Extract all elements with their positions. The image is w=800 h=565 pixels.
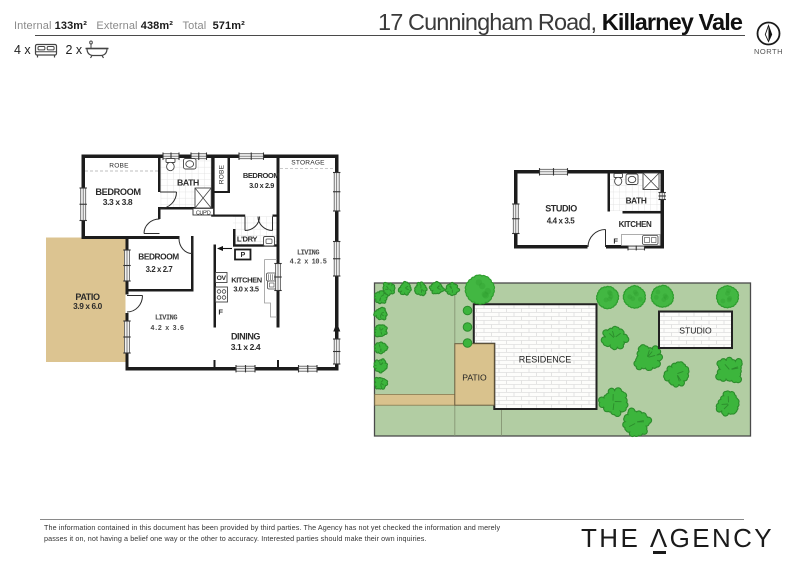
svg-text:DINING: DINING [231, 331, 260, 341]
svg-text:F: F [218, 308, 223, 317]
svg-text:4.4 x 3.5: 4.4 x 3.5 [547, 217, 575, 226]
svg-text:RESIDENCE: RESIDENCE [519, 355, 572, 365]
svg-text:4.2 x 10.5: 4.2 x 10.5 [290, 259, 327, 267]
svg-text:OV: OV [217, 275, 227, 282]
svg-text:3.2 x 2.7: 3.2 x 2.7 [146, 265, 173, 274]
svg-text:BEDROOM: BEDROOM [95, 187, 141, 197]
svg-text:BATH: BATH [177, 177, 199, 187]
svg-text:ROBE: ROBE [109, 163, 129, 170]
svg-text:KITCHEN: KITCHEN [619, 220, 652, 229]
svg-text:STUDIO: STUDIO [545, 204, 577, 214]
svg-text:CUP'D: CUP'D [196, 210, 211, 216]
svg-text:BATH: BATH [626, 196, 647, 206]
svg-text:F: F [613, 237, 618, 246]
svg-text:3.0 x 3.5: 3.0 x 3.5 [233, 285, 258, 294]
svg-text:PATIO: PATIO [462, 373, 487, 383]
svg-text:STUDIO: STUDIO [679, 326, 712, 336]
svg-text:L'DRY: L'DRY [237, 235, 258, 244]
svg-text:P: P [240, 250, 245, 259]
svg-text:3.1 x 2.4: 3.1 x 2.4 [231, 342, 261, 352]
svg-text:3.3 x 3.8: 3.3 x 3.8 [103, 197, 133, 207]
svg-text:NORTH: NORTH [754, 47, 783, 56]
svg-text:KITCHEN: KITCHEN [231, 276, 262, 285]
svg-text:LIVING: LIVING [297, 250, 319, 258]
svg-text:ROBE: ROBE [219, 164, 226, 184]
svg-text:BEDROOM: BEDROOM [138, 252, 179, 262]
svg-text:4.2 x 3.6: 4.2 x 3.6 [150, 325, 183, 333]
svg-text:3.9 x 6.0: 3.9 x 6.0 [73, 301, 102, 311]
svg-text:LIVING: LIVING [155, 315, 177, 323]
svg-text:STORAGE: STORAGE [291, 159, 325, 166]
svg-text:BEDROOM: BEDROOM [243, 171, 280, 180]
svg-text:3.0 x 2.9: 3.0 x 2.9 [249, 181, 274, 190]
